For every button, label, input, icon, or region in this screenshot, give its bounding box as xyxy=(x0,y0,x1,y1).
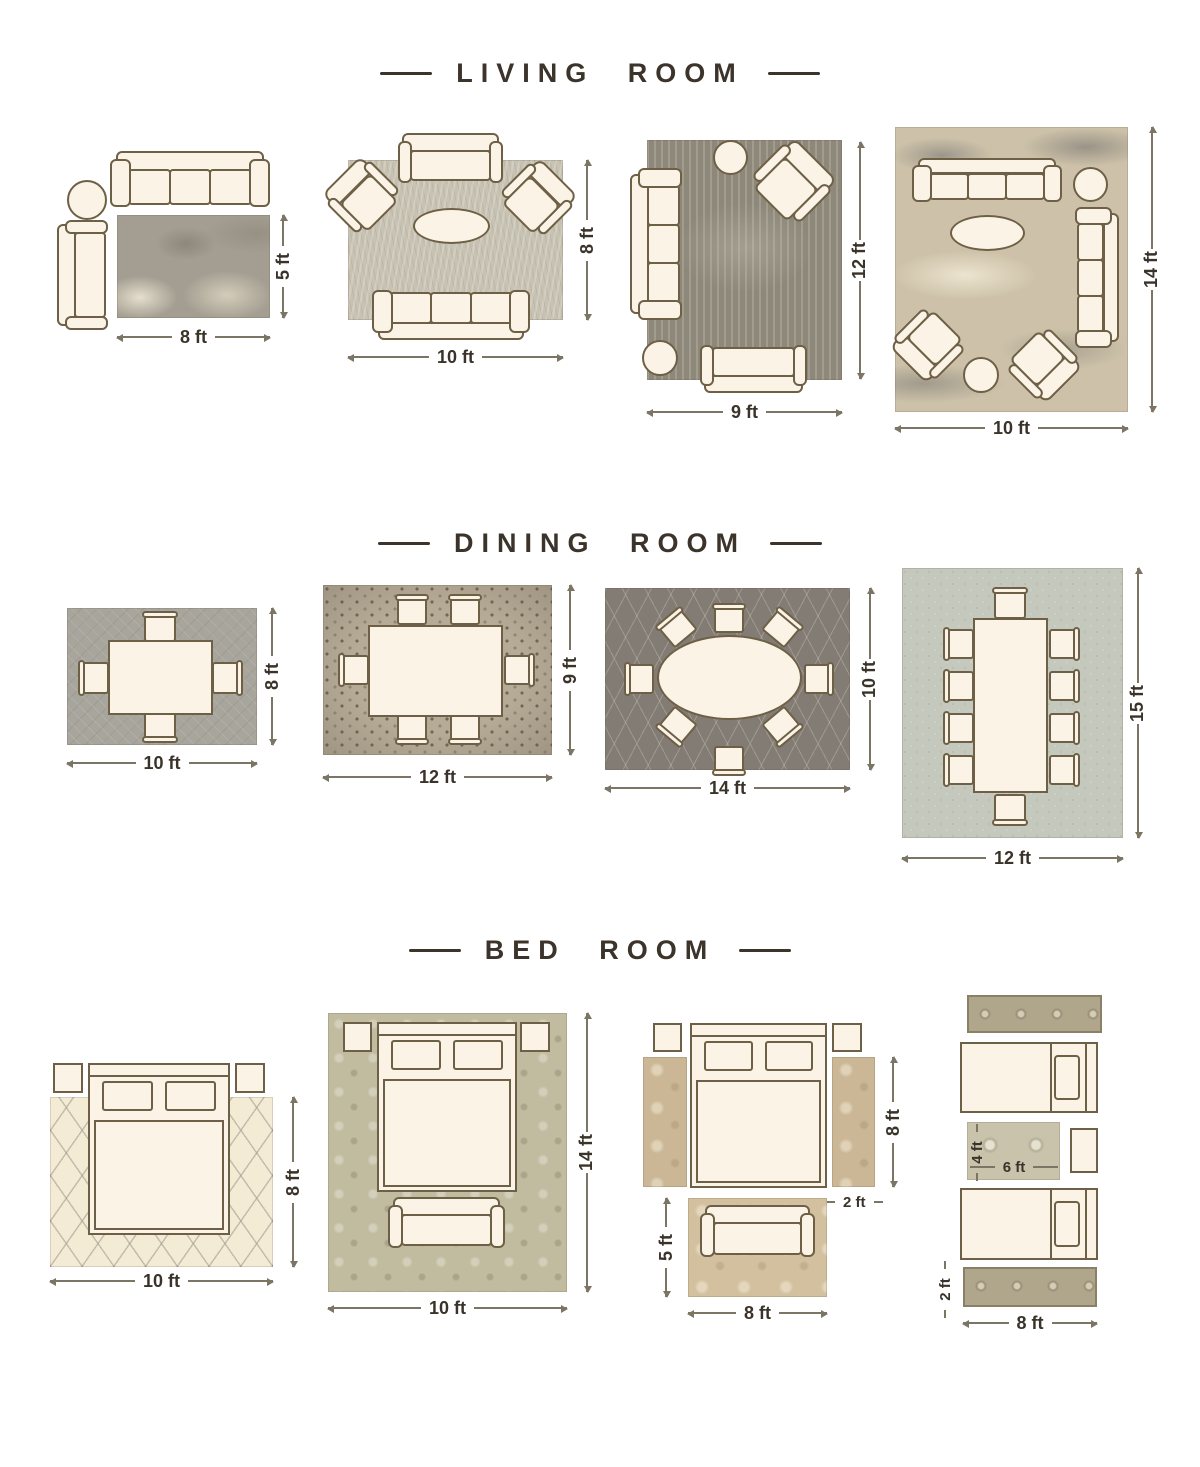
dining-chair xyxy=(144,615,176,642)
dim-runner-length: 8 ft xyxy=(873,1057,913,1187)
side-table xyxy=(67,180,107,220)
three-seat-sofa-vertical xyxy=(630,168,682,320)
runner-rug xyxy=(963,1267,1097,1307)
section-title-dining-room: DINING ROOM xyxy=(0,528,1200,559)
runner-rug xyxy=(967,995,1102,1033)
loveseat xyxy=(700,345,807,393)
oval-dining-table xyxy=(657,635,802,720)
dining-chair xyxy=(947,713,974,743)
nightstand xyxy=(343,1022,372,1052)
dim-rug-width: 12 ft xyxy=(902,848,1123,868)
dining-chair xyxy=(504,655,531,685)
section-title-text: DINING ROOM xyxy=(454,528,746,559)
dining-chair xyxy=(450,598,480,625)
section-title-living-room: LIVING ROOM xyxy=(0,58,1200,89)
dining-chair xyxy=(342,655,369,685)
bed xyxy=(88,1063,230,1235)
dim-rug-width: 9 ft xyxy=(647,402,842,422)
oval-coffee-table xyxy=(413,208,490,244)
dining-chair xyxy=(1049,755,1076,785)
nightstand xyxy=(832,1023,862,1052)
dim-rug-width: 8 ft xyxy=(688,1303,827,1323)
dining-chair xyxy=(82,662,109,694)
dim-rug-width: 8 ft xyxy=(117,327,270,347)
three-seat-sofa xyxy=(110,151,270,207)
dim-rug-width: 10 ft xyxy=(328,1298,567,1318)
dining-chair xyxy=(714,746,744,772)
title-dash-right xyxy=(768,72,820,75)
rug-8x5 xyxy=(117,215,270,318)
bench xyxy=(388,1197,505,1248)
runner-rug xyxy=(832,1057,875,1187)
nightstand xyxy=(520,1022,550,1052)
bed xyxy=(690,1023,827,1188)
dim-rug-height: 8 ft xyxy=(567,160,607,320)
dim-rug-height: 8 ft xyxy=(273,1097,313,1267)
dining-table xyxy=(368,625,503,717)
dining-chair xyxy=(994,794,1026,822)
dim-rug-width: 10 ft xyxy=(895,418,1128,438)
title-dash-right xyxy=(770,542,822,545)
section-title-text: BED ROOM xyxy=(485,935,716,966)
rug-size-guide: LIVING ROOM 5 ft 8 ft 8 ft 10 ft 12 ft 9… xyxy=(0,0,1200,1467)
dim-runner-width: 2 ft xyxy=(925,1261,965,1309)
dim-rug-width: 10 ft xyxy=(348,347,563,367)
dim-rug-width: 12 ft xyxy=(323,767,552,787)
nightstand xyxy=(1070,1128,1098,1173)
bench xyxy=(700,1205,815,1257)
title-dash-left xyxy=(380,72,432,75)
twin-bed xyxy=(960,1042,1098,1113)
dining-chair xyxy=(212,662,239,694)
dining-chair xyxy=(994,591,1026,619)
dining-chair xyxy=(397,714,427,741)
section-title-text: LIVING ROOM xyxy=(456,58,744,89)
dim-runner-length: 8 ft xyxy=(963,1313,1097,1333)
dim-rug-height: 5 ft xyxy=(263,215,303,318)
side-table xyxy=(713,140,748,175)
dim-rug-width: 14 ft xyxy=(605,778,850,798)
side-table xyxy=(1073,167,1108,202)
dim-runner-width: 2 ft xyxy=(826,1192,882,1212)
dining-chair xyxy=(1049,629,1076,659)
dim-rug-height: 10 ft xyxy=(850,588,890,770)
section-title-bed-room: BED ROOM xyxy=(0,935,1200,966)
dining-chair xyxy=(947,629,974,659)
dining-chair xyxy=(144,712,176,739)
dim-rug-width: 10 ft xyxy=(50,1271,273,1291)
twin-bed xyxy=(960,1188,1098,1260)
nightstand xyxy=(653,1023,682,1052)
dining-chair xyxy=(947,755,974,785)
dim-rug-height: 14 ft xyxy=(1132,127,1172,412)
dining-chair xyxy=(450,714,480,741)
three-seat-sofa xyxy=(372,290,530,340)
three-seat-sofa-vertical xyxy=(1075,207,1119,348)
ottoman xyxy=(963,357,999,393)
loveseat-vertical xyxy=(57,220,108,330)
dim-rug-width: 6 ft xyxy=(970,1157,1058,1177)
dining-chair xyxy=(1049,713,1076,743)
dining-chair xyxy=(1049,671,1076,701)
dim-rug-height: 14 ft xyxy=(567,1013,607,1292)
dim-rug-width: 10 ft xyxy=(67,753,257,773)
dining-chair xyxy=(628,664,654,694)
dining-table-long xyxy=(973,618,1048,793)
oval-coffee-table xyxy=(950,215,1025,251)
title-dash-left xyxy=(378,542,430,545)
dim-rug-height: 12 ft xyxy=(840,142,880,379)
title-dash-left xyxy=(409,949,461,952)
bed xyxy=(377,1022,517,1192)
ottoman xyxy=(642,340,678,376)
nightstand xyxy=(235,1063,265,1093)
nightstand xyxy=(53,1063,83,1093)
dim-rug-height: 5 ft xyxy=(646,1198,686,1297)
dining-chair xyxy=(947,671,974,701)
title-dash-right xyxy=(739,949,791,952)
dim-rug-height: 15 ft xyxy=(1118,568,1158,838)
runner-rug xyxy=(643,1057,687,1187)
dining-table xyxy=(108,640,213,715)
dining-chair xyxy=(804,664,830,694)
loveseat xyxy=(398,133,503,183)
dining-chair xyxy=(397,598,427,625)
three-seat-sofa xyxy=(912,158,1062,202)
dining-chair xyxy=(714,607,744,633)
dim-rug-height: 8 ft xyxy=(252,608,292,745)
dim-rug-height: 9 ft xyxy=(550,585,590,755)
